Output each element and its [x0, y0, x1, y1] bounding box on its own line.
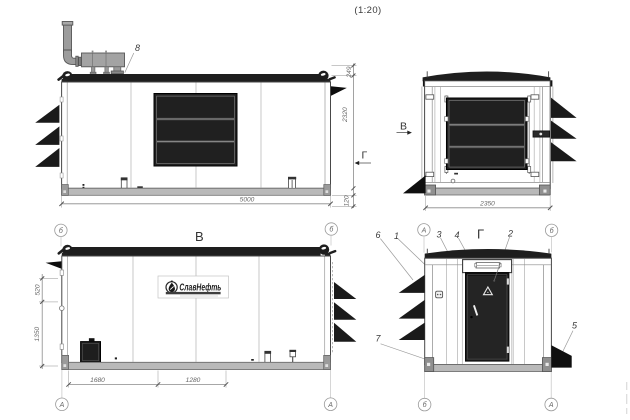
- svg-text:6: 6: [376, 230, 381, 240]
- svg-text:Г: Г: [362, 150, 368, 162]
- svg-text:1280: 1280: [186, 377, 201, 384]
- svg-text:5000: 5000: [240, 196, 255, 203]
- svg-text:2: 2: [507, 229, 513, 239]
- svg-text:2350: 2350: [479, 201, 495, 208]
- svg-text:А: А: [548, 402, 554, 409]
- svg-text:2320: 2320: [342, 107, 349, 123]
- svg-text:СлавНефть: СлавНефть: [179, 281, 221, 293]
- svg-text:А: А: [59, 402, 65, 409]
- svg-text:120: 120: [344, 195, 351, 206]
- svg-text:249: 249: [346, 66, 353, 78]
- svg-text:520: 520: [35, 284, 42, 295]
- svg-text:В: В: [400, 121, 407, 133]
- svg-text:Г: Г: [477, 227, 484, 242]
- svg-text:1680: 1680: [90, 377, 105, 384]
- svg-text:8: 8: [135, 43, 140, 53]
- svg-text:(1:20): (1:20): [354, 5, 381, 16]
- svg-text:А: А: [327, 402, 333, 409]
- svg-text:А: А: [421, 227, 427, 234]
- svg-text:1350: 1350: [34, 326, 41, 341]
- svg-text:В: В: [195, 229, 204, 244]
